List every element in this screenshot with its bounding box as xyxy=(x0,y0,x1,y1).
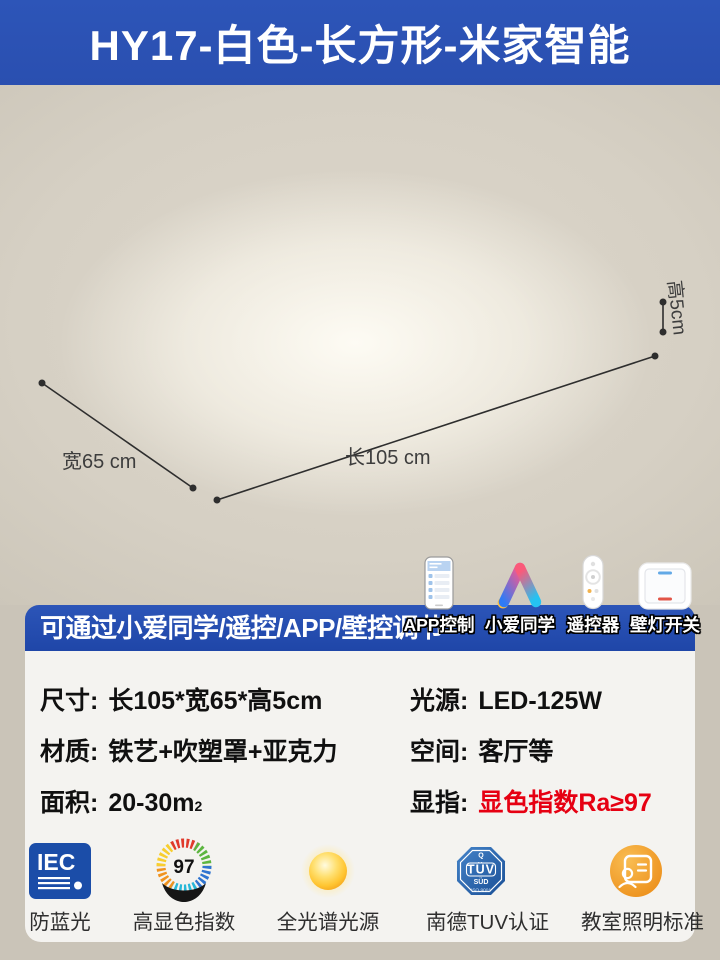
spec-area: 面积: 20-30m2 xyxy=(25,783,410,819)
spec-label: 面积: xyxy=(40,783,98,819)
spec-value: 铁艺+吹塑罩+亚克力 xyxy=(108,732,337,768)
spec-label: 光源: xyxy=(410,681,468,717)
spec-label: 显指: xyxy=(410,783,468,819)
wall-switch-icon xyxy=(627,556,703,610)
classroom-icon xyxy=(581,841,691,901)
control-method-label: 遥控器 xyxy=(555,612,631,637)
control-method-label: APP控制 xyxy=(401,612,477,637)
spec-cri: 显指: 显色指数Ra≥97 xyxy=(410,783,652,819)
sun-icon xyxy=(273,841,383,901)
spec-value: 长105*宽65*高5cm xyxy=(108,681,322,717)
cert-classroom-standard: 教室照明标准 xyxy=(581,841,691,935)
iec-badge-icon: IEC xyxy=(5,841,115,901)
spec-row: 尺寸: 长105*宽65*高5cm 光源: LED-125W xyxy=(25,673,695,724)
cert-label: 全光谱光源 xyxy=(273,905,383,935)
spec-panel: 尺寸: 长105*宽65*高5cm 光源: LED-125W 材质: 铁艺+吹塑… xyxy=(25,651,695,942)
spec-material: 材质: 铁艺+吹塑罩+亚克力 xyxy=(25,732,410,768)
tuv-badge-icon: Q TÜV SÜD ISO 9001 xyxy=(426,841,536,901)
lamp-halo-glow xyxy=(0,121,720,565)
dimension-length-label: 长105 cm xyxy=(345,446,431,469)
app-phone-icon xyxy=(401,556,477,610)
cert-high-cri: 97 高显色指数 xyxy=(129,841,239,935)
tuv-badge-q: Q xyxy=(478,853,484,860)
xiaoai-icon xyxy=(482,556,558,610)
cert-anti-blue-light: IEC 防蓝光 xyxy=(5,841,115,935)
control-method-wall-switch: 壁灯开关 xyxy=(627,556,703,637)
spec-row: 面积: 20-30m2 显指: 显色指数Ra≥97 xyxy=(25,775,695,826)
control-banner-text: 可通过小爱同学/遥控/APP/壁控调节 xyxy=(40,605,444,651)
cert-label: 防蓝光 xyxy=(5,905,115,935)
control-method-remote: 遥控器 xyxy=(555,556,631,637)
spec-row: 材质: 铁艺+吹塑罩+亚克力 空间: 客厅等 xyxy=(25,724,695,775)
control-method-app: APP控制 xyxy=(401,556,477,637)
dimension-width-label: 宽65 cm xyxy=(62,450,136,473)
spec-value: 20-30m xyxy=(108,789,194,818)
cert-label: 教室照明标准 xyxy=(581,905,691,935)
spec-label: 尺寸: xyxy=(40,681,98,717)
spec-label: 材质: xyxy=(40,732,98,768)
control-method-label: 壁灯开关 xyxy=(627,612,703,637)
spec-table: 尺寸: 长105*宽65*高5cm 光源: LED-125W 材质: 铁艺+吹塑… xyxy=(25,673,695,826)
tuv-badge-iso: ISO 9001 xyxy=(471,888,492,894)
tuv-badge-sub: SÜD xyxy=(474,877,489,886)
spec-value-superscript: 2 xyxy=(195,798,203,814)
tuv-badge-text: TÜV xyxy=(467,862,495,877)
ceiling-lamp-illustration: 高5cm 宽65 cm 长105 cm xyxy=(0,85,720,605)
cri-ring-icon: 97 xyxy=(129,841,239,901)
spec-room: 空间: 客厅等 xyxy=(410,732,553,768)
control-method-xiaoai: 小爱同学 xyxy=(482,556,558,637)
header-bar: HY17-白色-长方形-米家智能 xyxy=(0,0,720,85)
cert-label: 南德TUV认证 xyxy=(426,905,536,935)
cert-tuv: Q TÜV SÜD ISO 9001 南德TUV认证 xyxy=(426,841,536,935)
iec-badge-text: IEC xyxy=(37,849,75,875)
spec-value: 客厅等 xyxy=(478,732,553,768)
cert-full-spectrum: 全光谱光源 xyxy=(273,841,383,935)
remote-icon xyxy=(555,556,631,610)
spec-label: 空间: xyxy=(410,732,468,768)
cert-label: 高显色指数 xyxy=(129,905,239,935)
spec-size: 尺寸: 长105*宽65*高5cm xyxy=(25,681,410,717)
cri-badge-value: 97 xyxy=(173,857,194,878)
spec-value: LED-125W xyxy=(478,687,602,716)
product-detail-page: HY17-白色-长方形-米家智能 xyxy=(0,0,720,960)
spec-light-source: 光源: LED-125W xyxy=(410,681,602,717)
spec-value-highlight: 显色指数Ra≥97 xyxy=(478,783,652,819)
page-title: HY17-白色-长方形-米家智能 xyxy=(89,12,630,73)
product-photo: 高5cm 宽65 cm 长105 cm xyxy=(0,85,720,605)
control-method-label: 小爱同学 xyxy=(482,612,558,637)
